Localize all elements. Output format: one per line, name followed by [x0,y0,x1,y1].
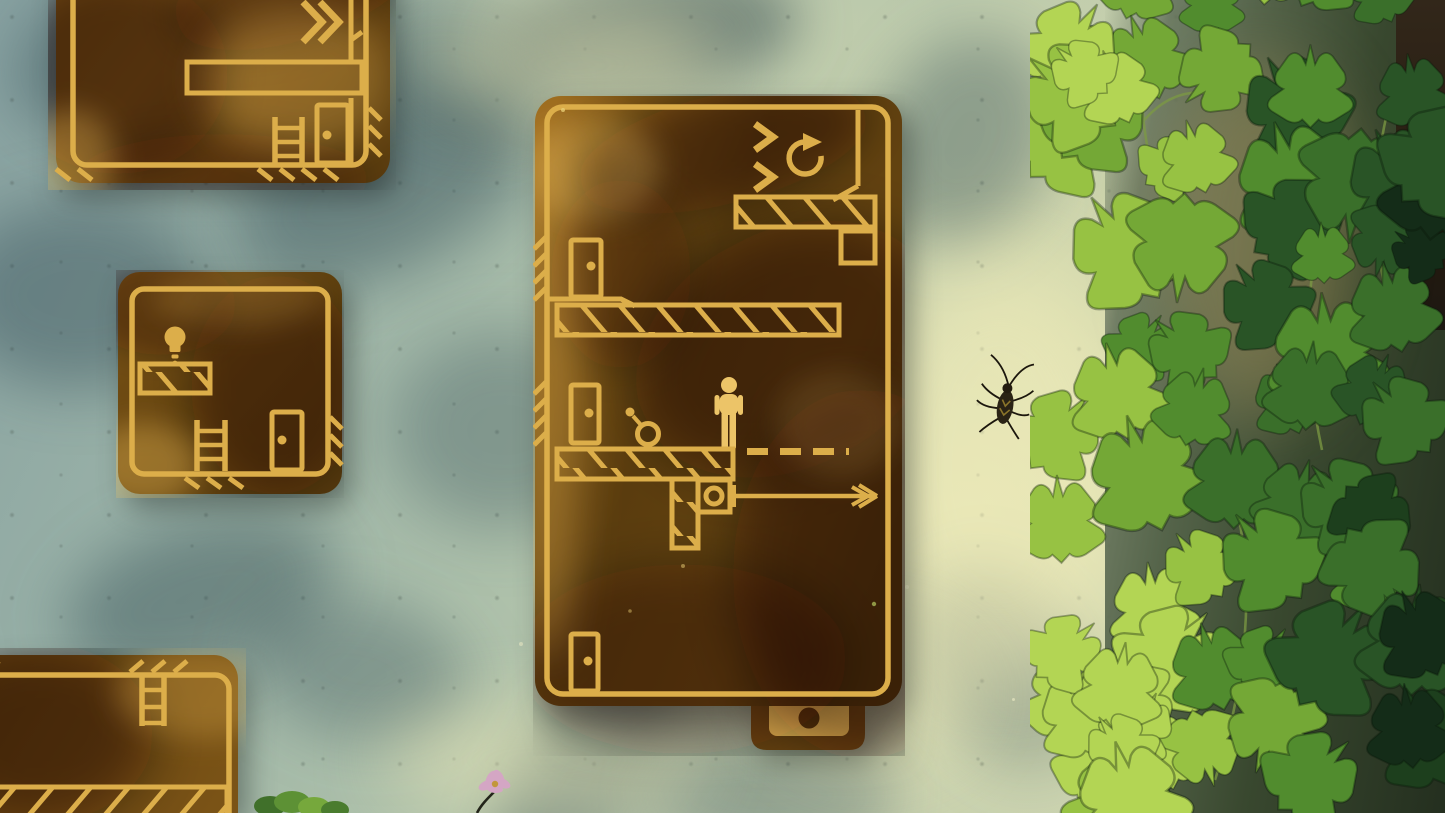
dust-mote [1012,698,1015,701]
green-plant-sprout [240,780,370,813]
puzzle-panel-main[interactable] [533,94,905,756]
ivy-vines [1030,0,1445,813]
dust-mote [905,585,909,589]
hatched-platform [140,364,210,393]
dust-mote [519,642,523,646]
beetle-insect [975,352,1035,447]
hatched-platform [0,787,227,813]
hatched-platform [736,197,875,227]
door-knob [278,436,287,445]
door-knob [585,409,594,418]
hatched-platform-long [557,305,839,335]
bolt-hole [799,708,820,729]
dust-speck [561,108,565,112]
puzzle-panel-bottom-left[interactable] [0,648,246,813]
leaf-shadow [238,579,482,762]
door-knob [584,657,593,666]
dust-speck [872,602,876,606]
dust-speck [628,609,632,613]
ivy-leaf [1268,45,1353,128]
hatched-pillar [672,479,698,548]
puzzle-panel-top-left[interactable] [48,0,396,190]
puzzle-panel-mid-left[interactable] [116,270,344,498]
door-knob [587,262,596,271]
dust-speck [681,564,685,568]
pink-wildflower [455,765,525,813]
game-scene [0,0,1445,813]
door-knob [323,131,332,140]
hatched-platform-short [557,449,733,479]
